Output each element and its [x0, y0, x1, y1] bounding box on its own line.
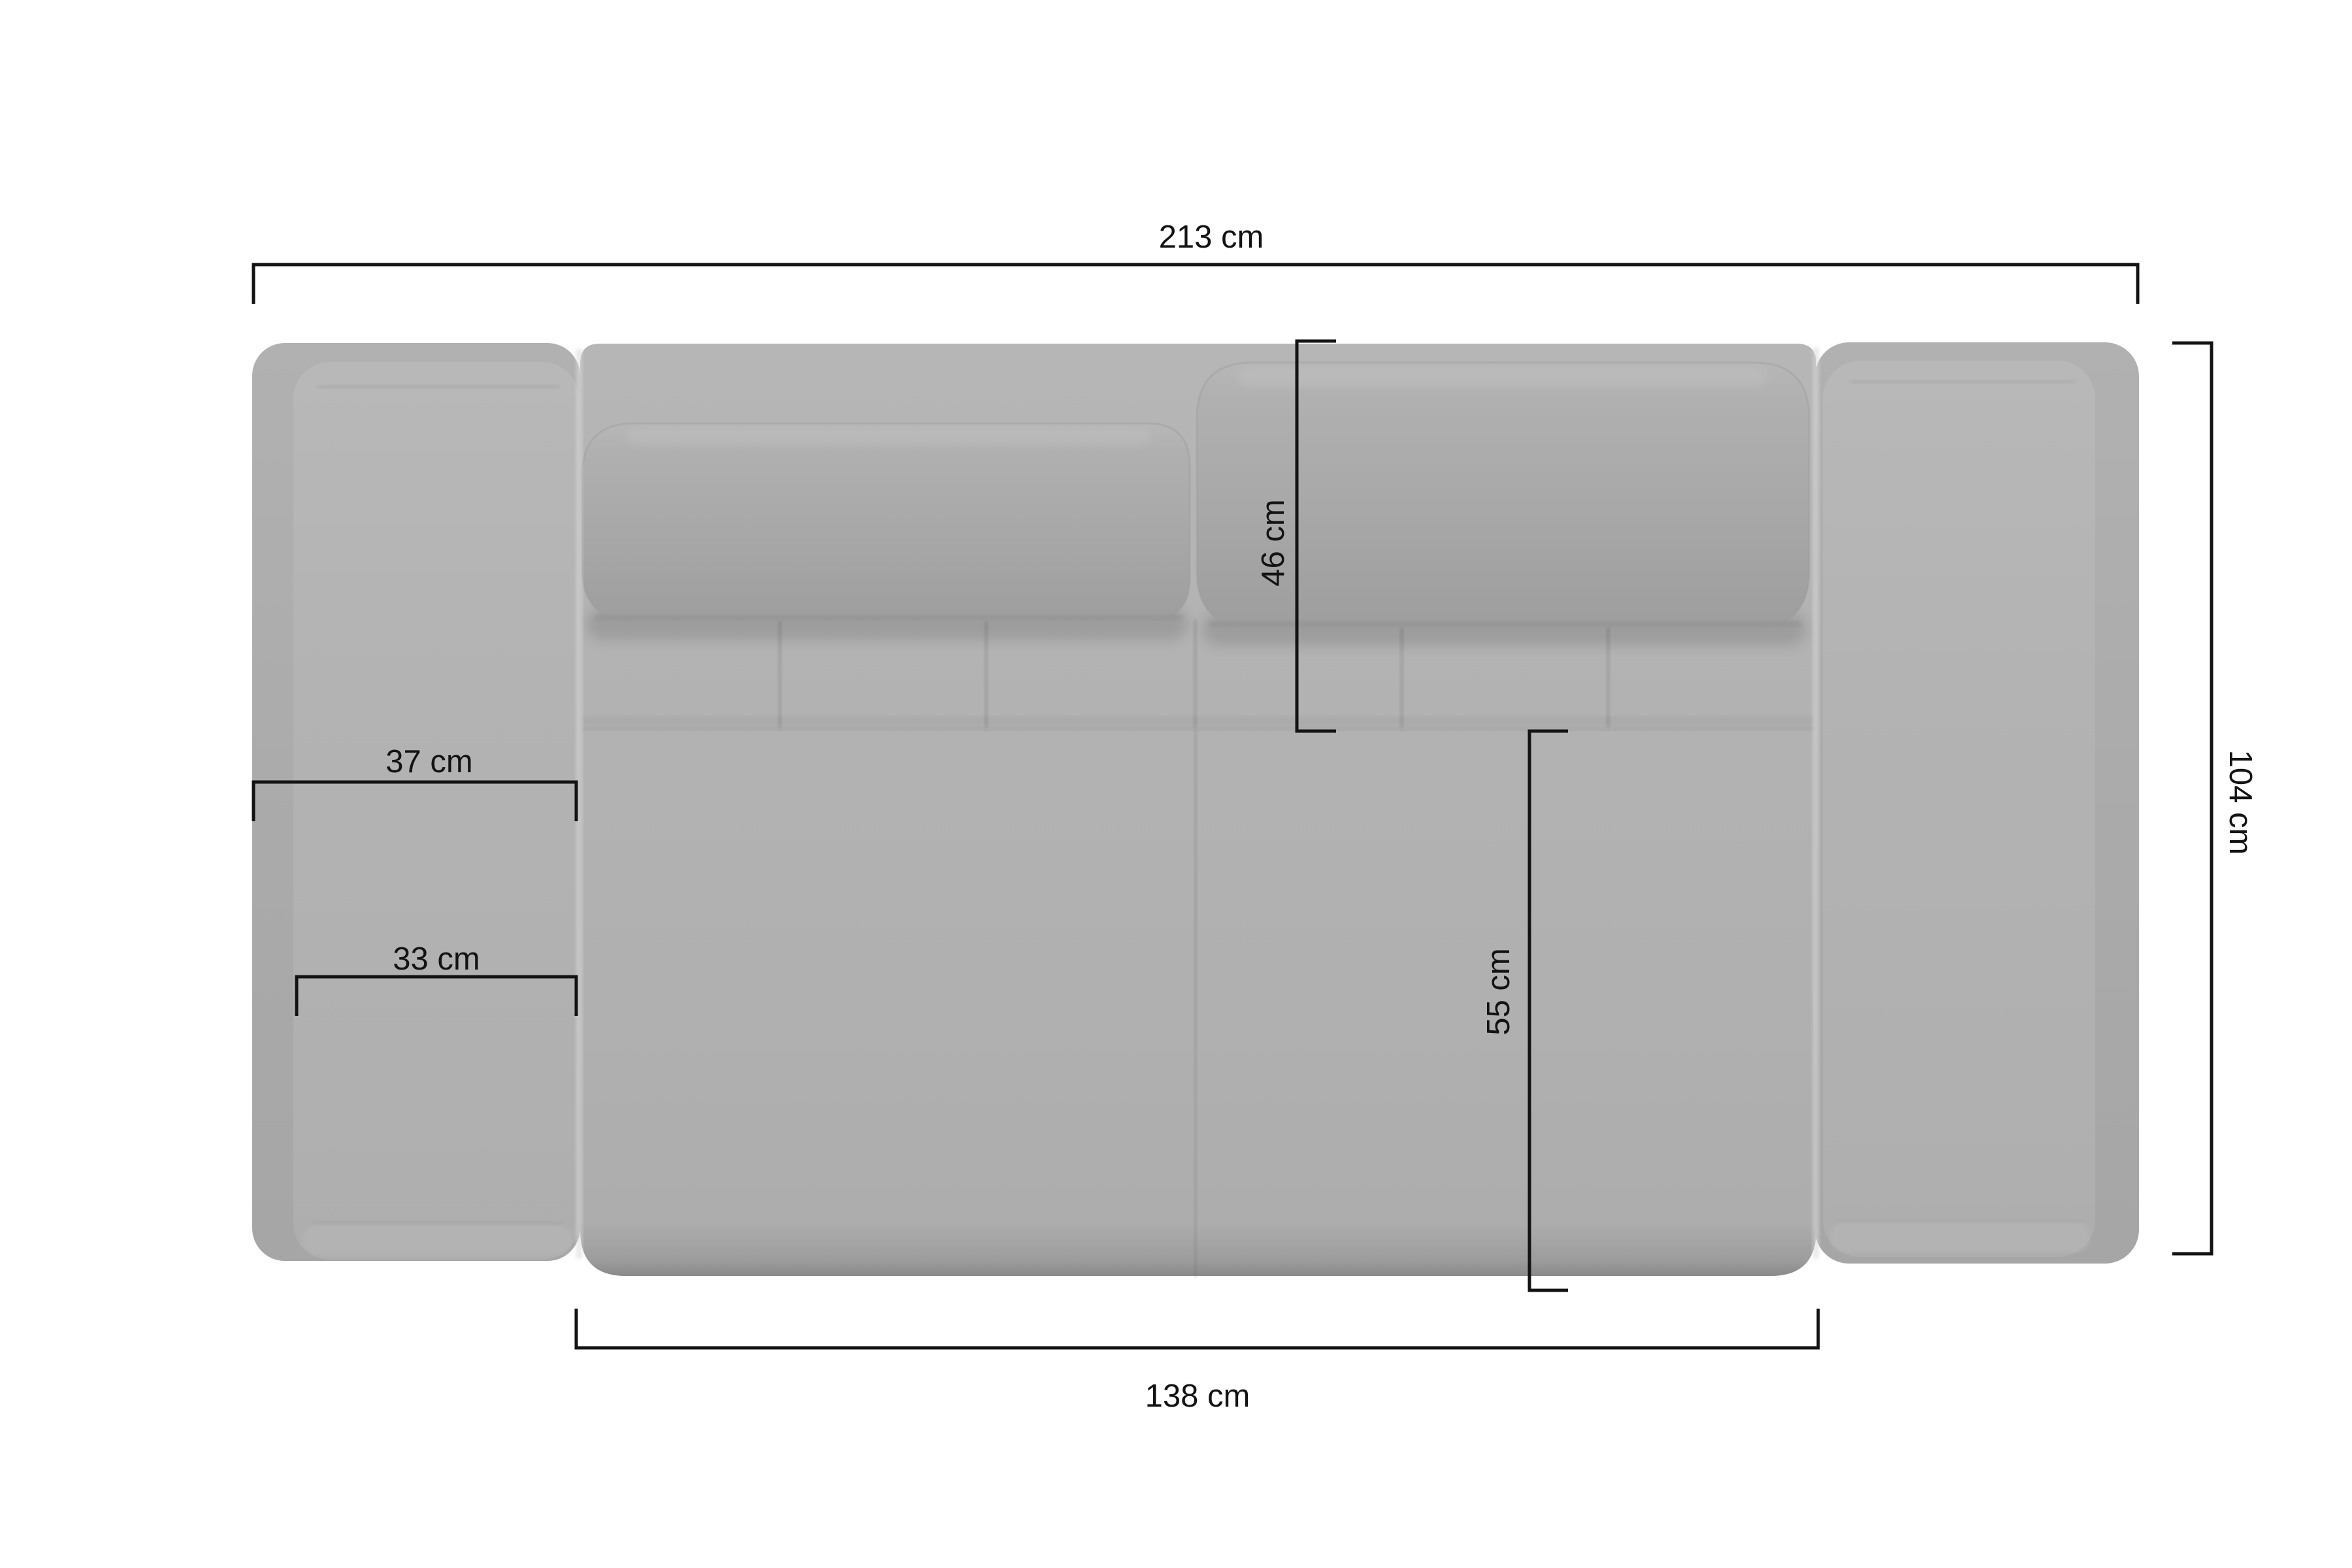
svg-text:213 cm: 213 cm: [1159, 220, 1264, 255]
svg-text:55 cm: 55 cm: [1481, 948, 1516, 1035]
svg-text:33 cm: 33 cm: [393, 941, 480, 977]
svg-text:46 cm: 46 cm: [1256, 499, 1291, 586]
svg-text:37 cm: 37 cm: [385, 744, 472, 779]
svg-text:104 cm: 104 cm: [2223, 750, 2258, 855]
svg-text:138 cm: 138 cm: [1145, 1379, 1250, 1414]
